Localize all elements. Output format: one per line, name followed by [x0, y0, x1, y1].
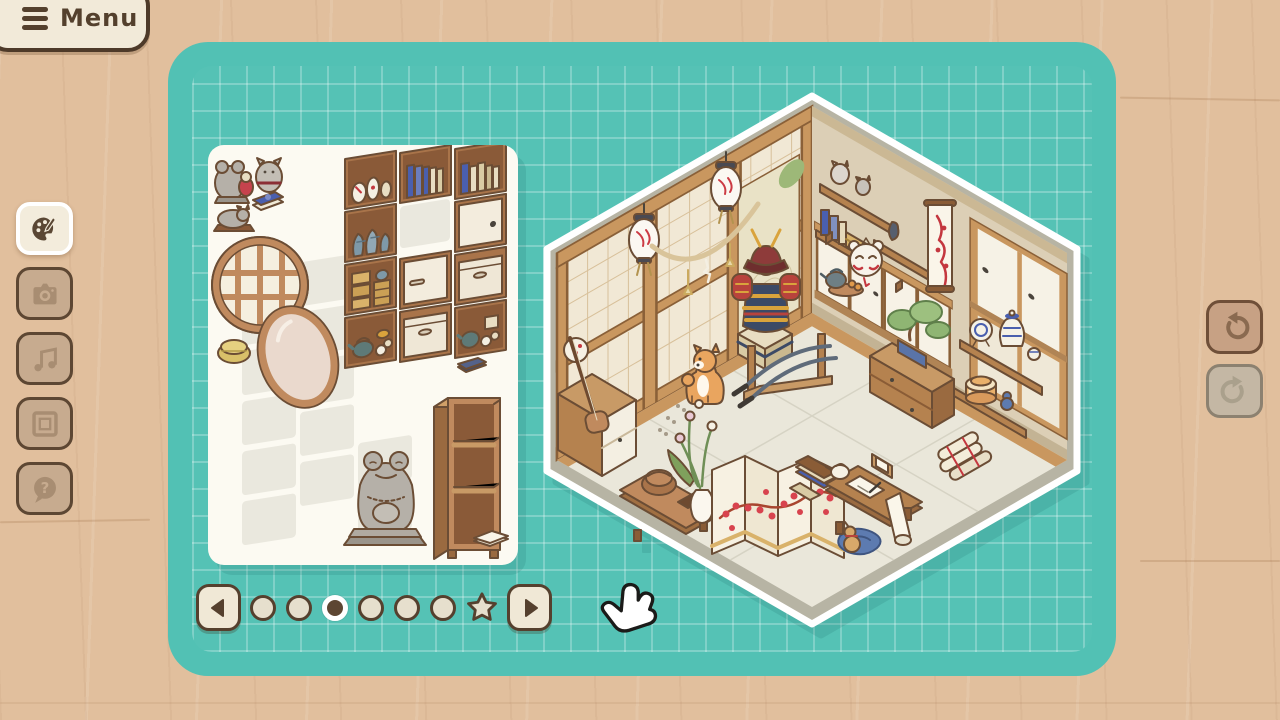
hanging-scroll[interactable] — [924, 200, 956, 292]
blue-gourd-bottle[interactable] — [1001, 392, 1013, 410]
redo-rotate-button[interactable] — [1206, 364, 1263, 418]
rotate-cw-icon — [1219, 375, 1251, 407]
tray-item-shelf-sake-jars[interactable] — [345, 151, 396, 209]
wood-grain-line — [1120, 97, 1280, 102]
tray-items — [208, 145, 518, 565]
tray-item-frog-statue-pair[interactable] — [215, 161, 253, 203]
sidebar-toolbar: ? — [16, 202, 73, 515]
page-dot-3-active[interactable] — [322, 595, 348, 621]
page-dot-2[interactable] — [286, 595, 312, 621]
tray-item-stone-frog-statue[interactable] — [344, 452, 426, 545]
tray-item-shelf-tea-jars[interactable] — [455, 300, 506, 358]
room-scene — [540, 88, 1085, 633]
striped-box[interactable] — [966, 377, 996, 405]
page-dot-1[interactable] — [250, 595, 276, 621]
undo-rotate-button[interactable] — [1206, 300, 1263, 354]
tool-help-button[interactable]: ? — [16, 462, 73, 515]
tool-decorate-button[interactable] — [16, 202, 73, 255]
tool-photo-button[interactable] — [16, 267, 73, 320]
camera-icon — [30, 279, 60, 309]
tray-item-lucky-cat-statue[interactable] — [256, 158, 282, 192]
tray-item-small-dark-book[interactable] — [458, 358, 486, 372]
rotate-ccw-icon — [1219, 311, 1251, 343]
wood-grain-line — [0, 519, 150, 524]
tray-item-shelf-blue-books[interactable] — [400, 145, 451, 203]
tray-item-shelf-cream-books[interactable] — [455, 145, 506, 199]
page-dot-5[interactable] — [394, 595, 420, 621]
tray-item-shelf-wooden-crates[interactable] — [345, 257, 396, 315]
wood-grain-line — [1140, 560, 1280, 562]
tray-item-sleeping-cat-statue[interactable] — [214, 205, 254, 231]
tray-item-shelf-teapot-set[interactable] — [345, 310, 396, 368]
menu-button[interactable]: Menu — [0, 0, 150, 52]
palette-icon — [30, 214, 60, 244]
picture-frame-icon — [30, 409, 60, 439]
hamburger-icon — [22, 7, 48, 30]
tool-music-button[interactable] — [16, 332, 73, 385]
tray-item-straw-basket[interactable] — [218, 340, 250, 363]
page-dot-4[interactable] — [358, 595, 384, 621]
tray-item-blue-book[interactable] — [253, 192, 283, 210]
page-dot-6[interactable] — [430, 595, 456, 621]
tool-frame-button[interactable] — [16, 397, 73, 450]
arrow-left-icon — [209, 598, 229, 618]
tray-item-shelf-cabinet-door[interactable] — [400, 251, 451, 309]
item-tray-panel — [208, 145, 518, 565]
page-star-7[interactable] — [465, 591, 499, 625]
wood-grain-line — [0, 702, 1280, 704]
tray-pagination — [196, 584, 552, 631]
question-icon: ? — [30, 474, 60, 504]
page-next-button[interactable] — [507, 584, 552, 631]
svg-text:?: ? — [40, 478, 49, 496]
tray-item-shelf-drawer[interactable] — [400, 304, 451, 362]
tray-item-shelf-drawer-2[interactable] — [455, 247, 506, 305]
tray-item-shelf-blue-vases[interactable] — [345, 204, 396, 262]
menu-label: Menu — [60, 4, 138, 32]
arrow-right-icon — [520, 598, 540, 618]
page-prev-button[interactable] — [196, 584, 241, 631]
tray-item-shelf-door-knob[interactable] — [455, 194, 506, 252]
music-note-icon — [30, 344, 60, 374]
